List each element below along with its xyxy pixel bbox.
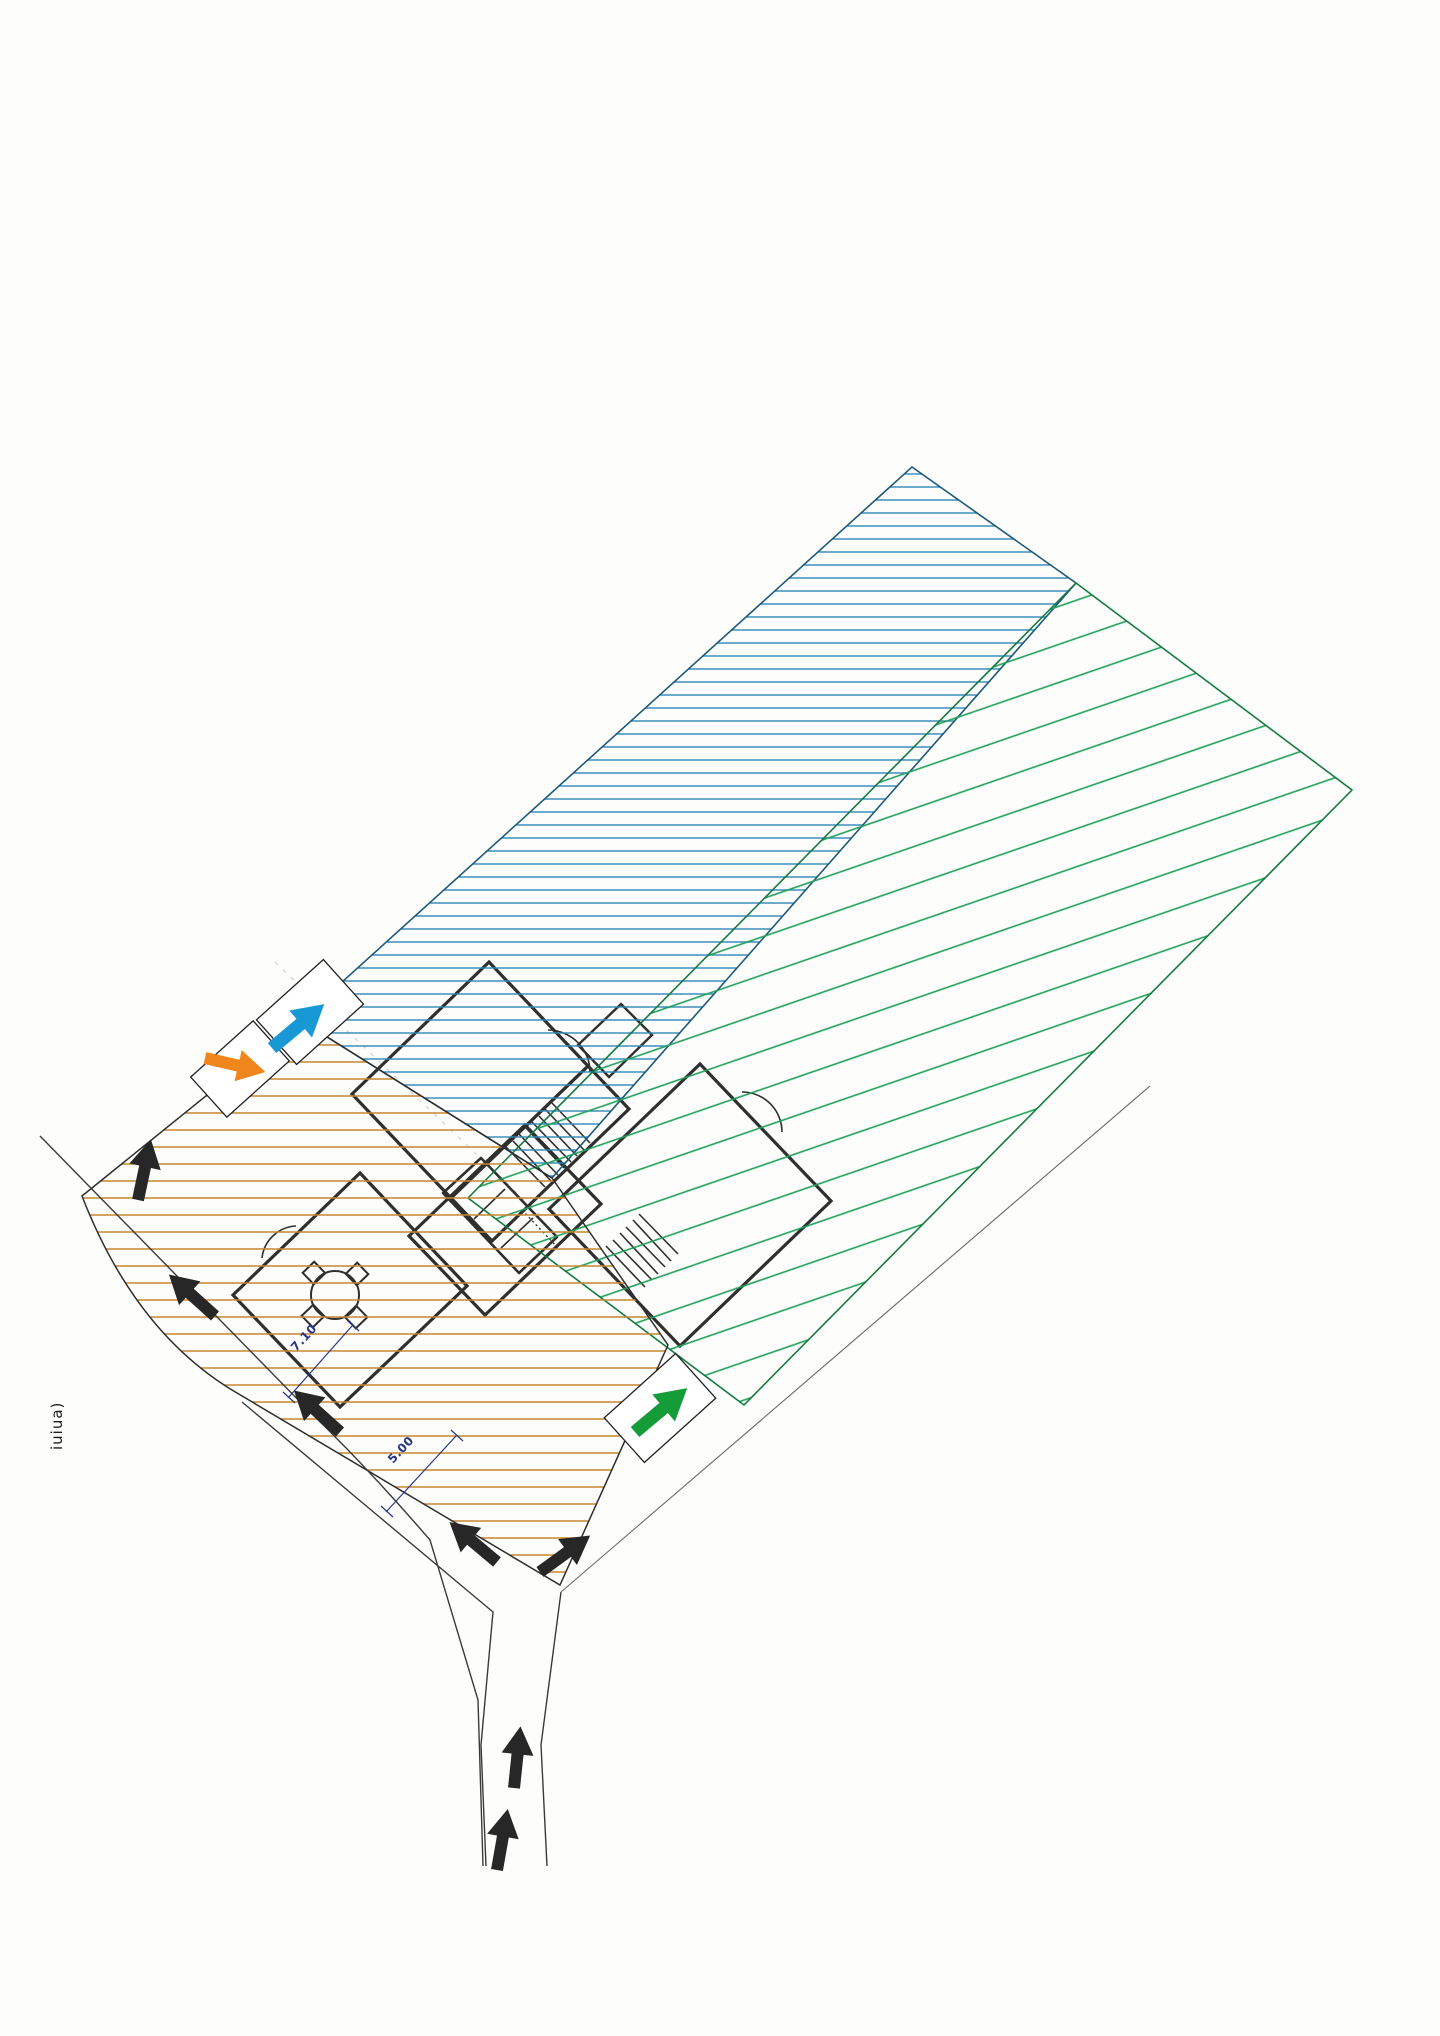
road-arrow xyxy=(498,1725,536,1790)
road-stem-right-edge xyxy=(541,1592,561,1866)
street-label-vertical: iuiua) xyxy=(48,1402,66,1450)
site-plan-drawing: 7.10 5.00 iuiua) xyxy=(0,0,1440,2036)
road-arrow xyxy=(481,1806,523,1873)
